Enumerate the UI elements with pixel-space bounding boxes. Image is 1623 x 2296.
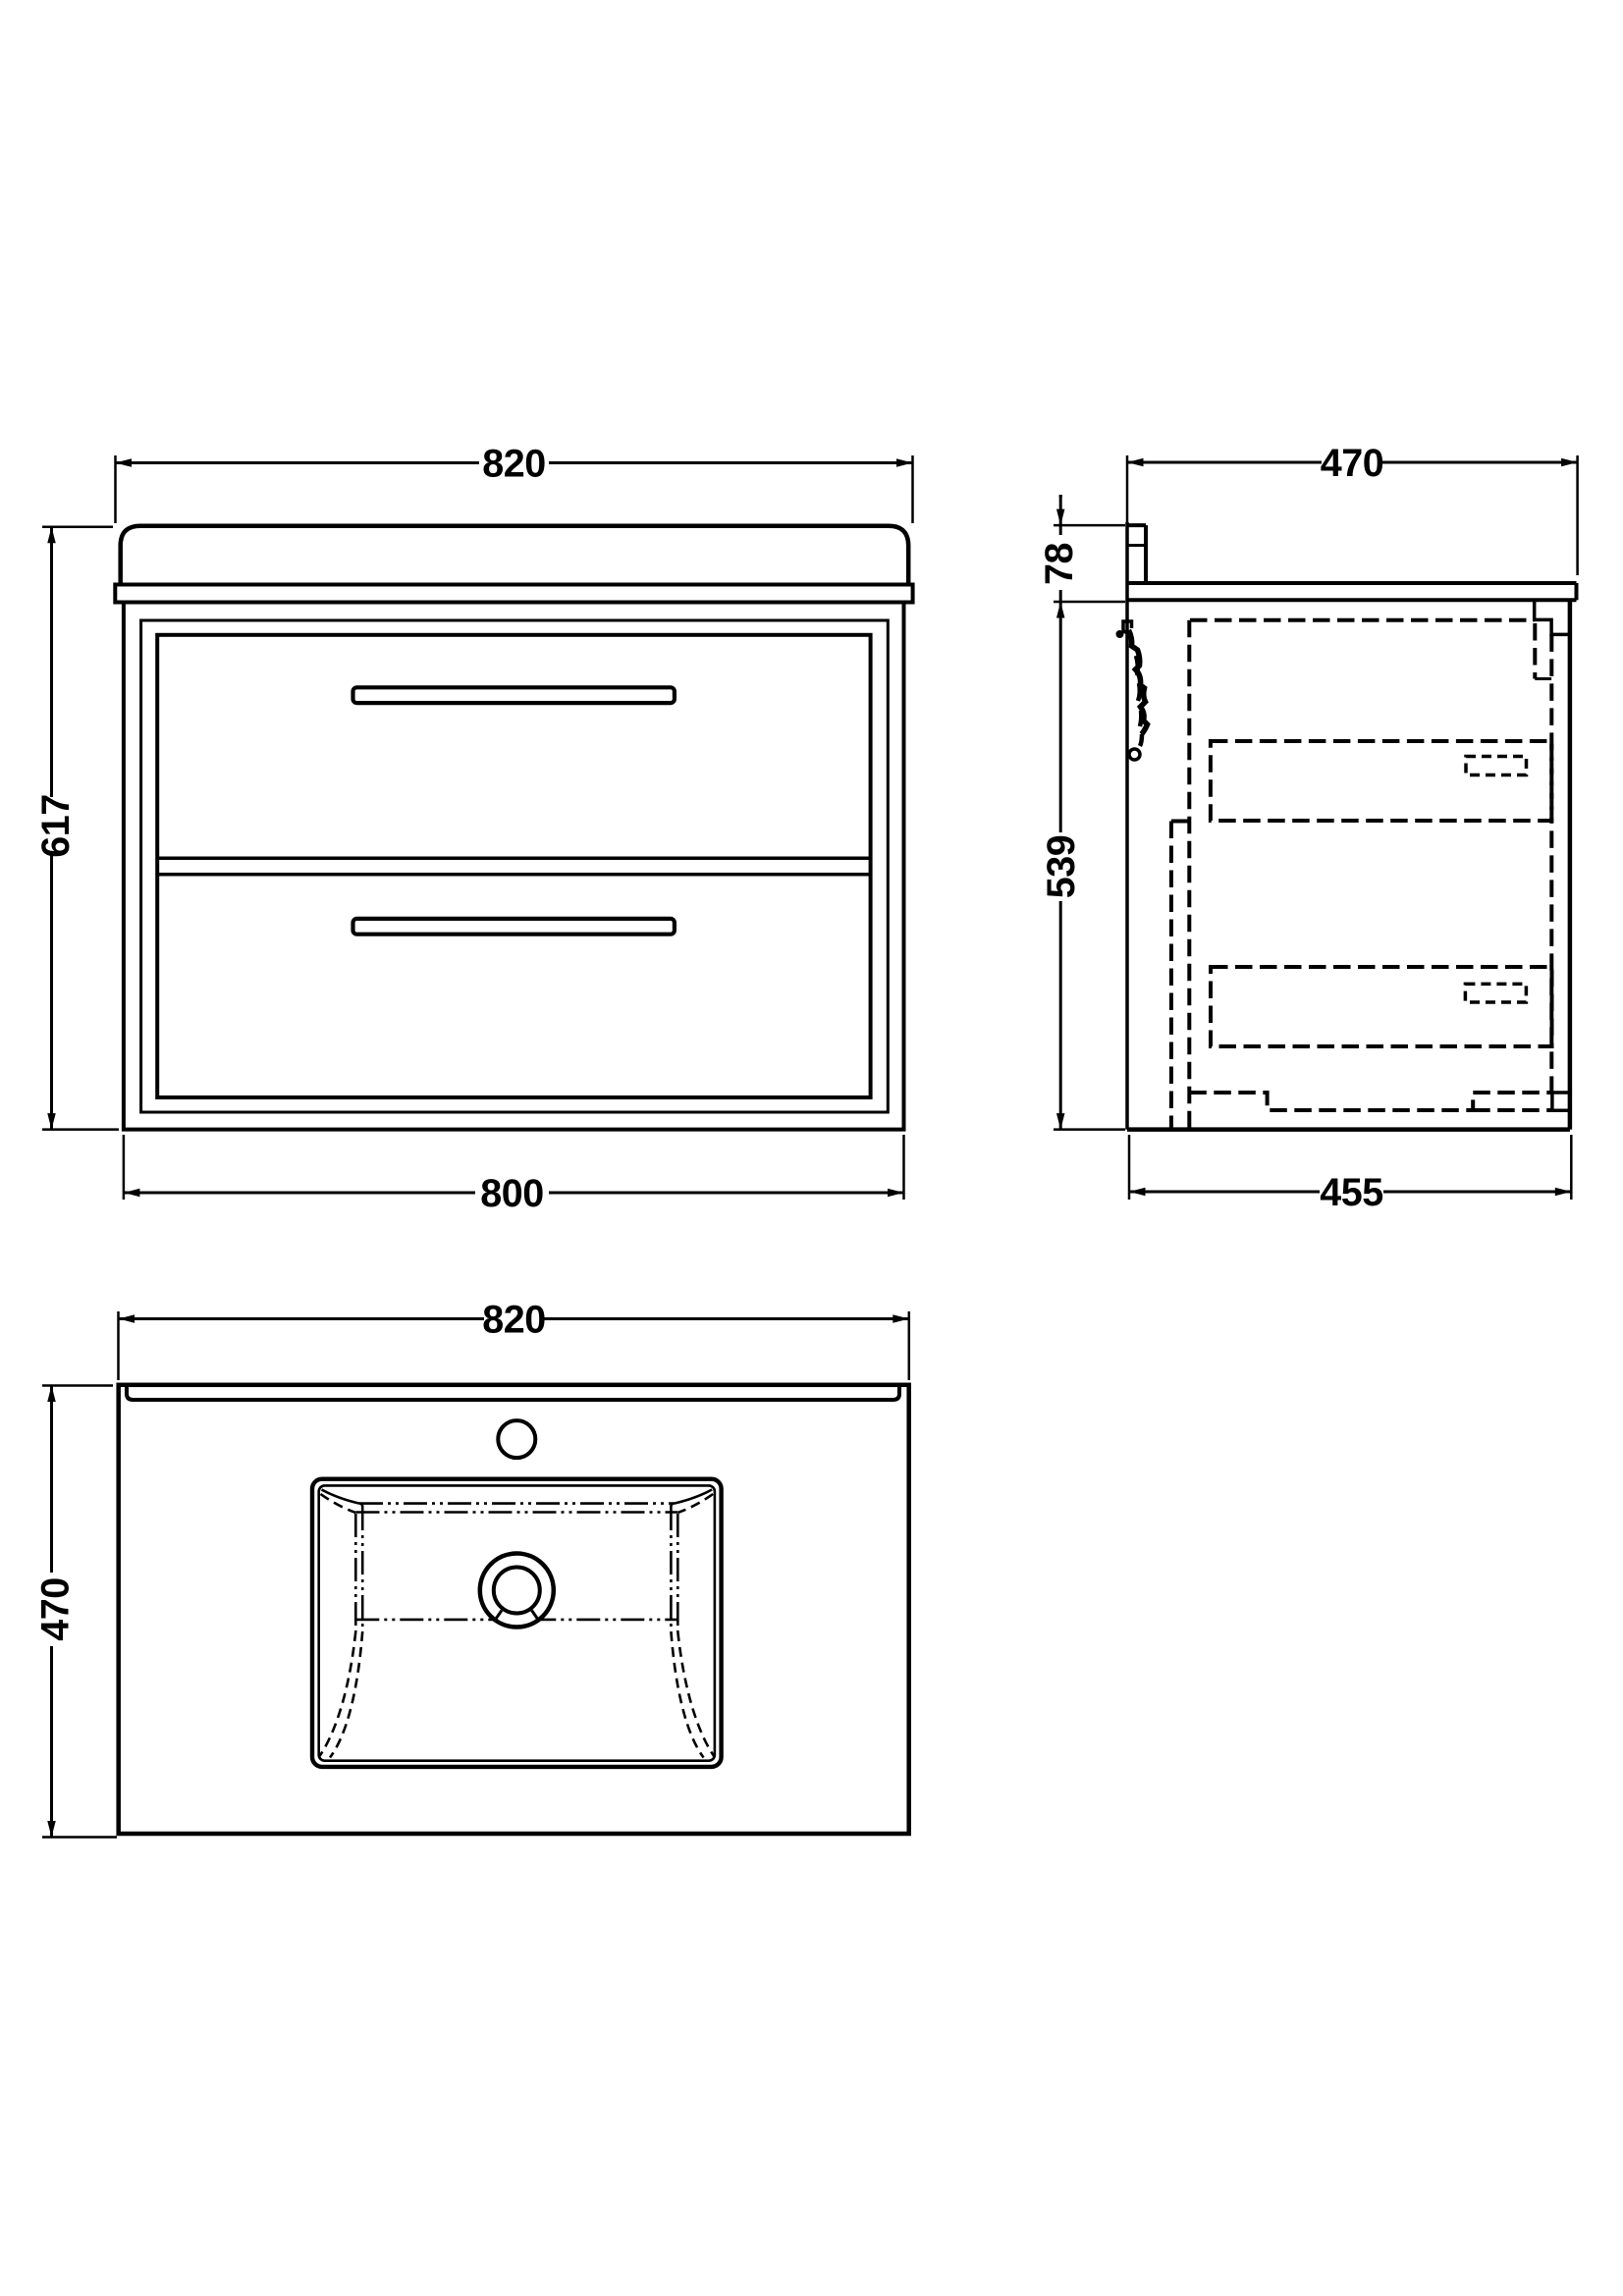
svg-text:455: 455 xyxy=(1320,1171,1382,1214)
svg-text:539: 539 xyxy=(1040,835,1083,898)
svg-text:617: 617 xyxy=(34,794,78,857)
svg-text:470: 470 xyxy=(1321,442,1383,485)
svg-text:820: 820 xyxy=(482,443,545,486)
svg-text:800: 800 xyxy=(480,1172,543,1215)
svg-text:78: 78 xyxy=(1038,543,1081,585)
svg-text:820: 820 xyxy=(482,1299,545,1342)
svg-text:470: 470 xyxy=(34,1577,78,1640)
